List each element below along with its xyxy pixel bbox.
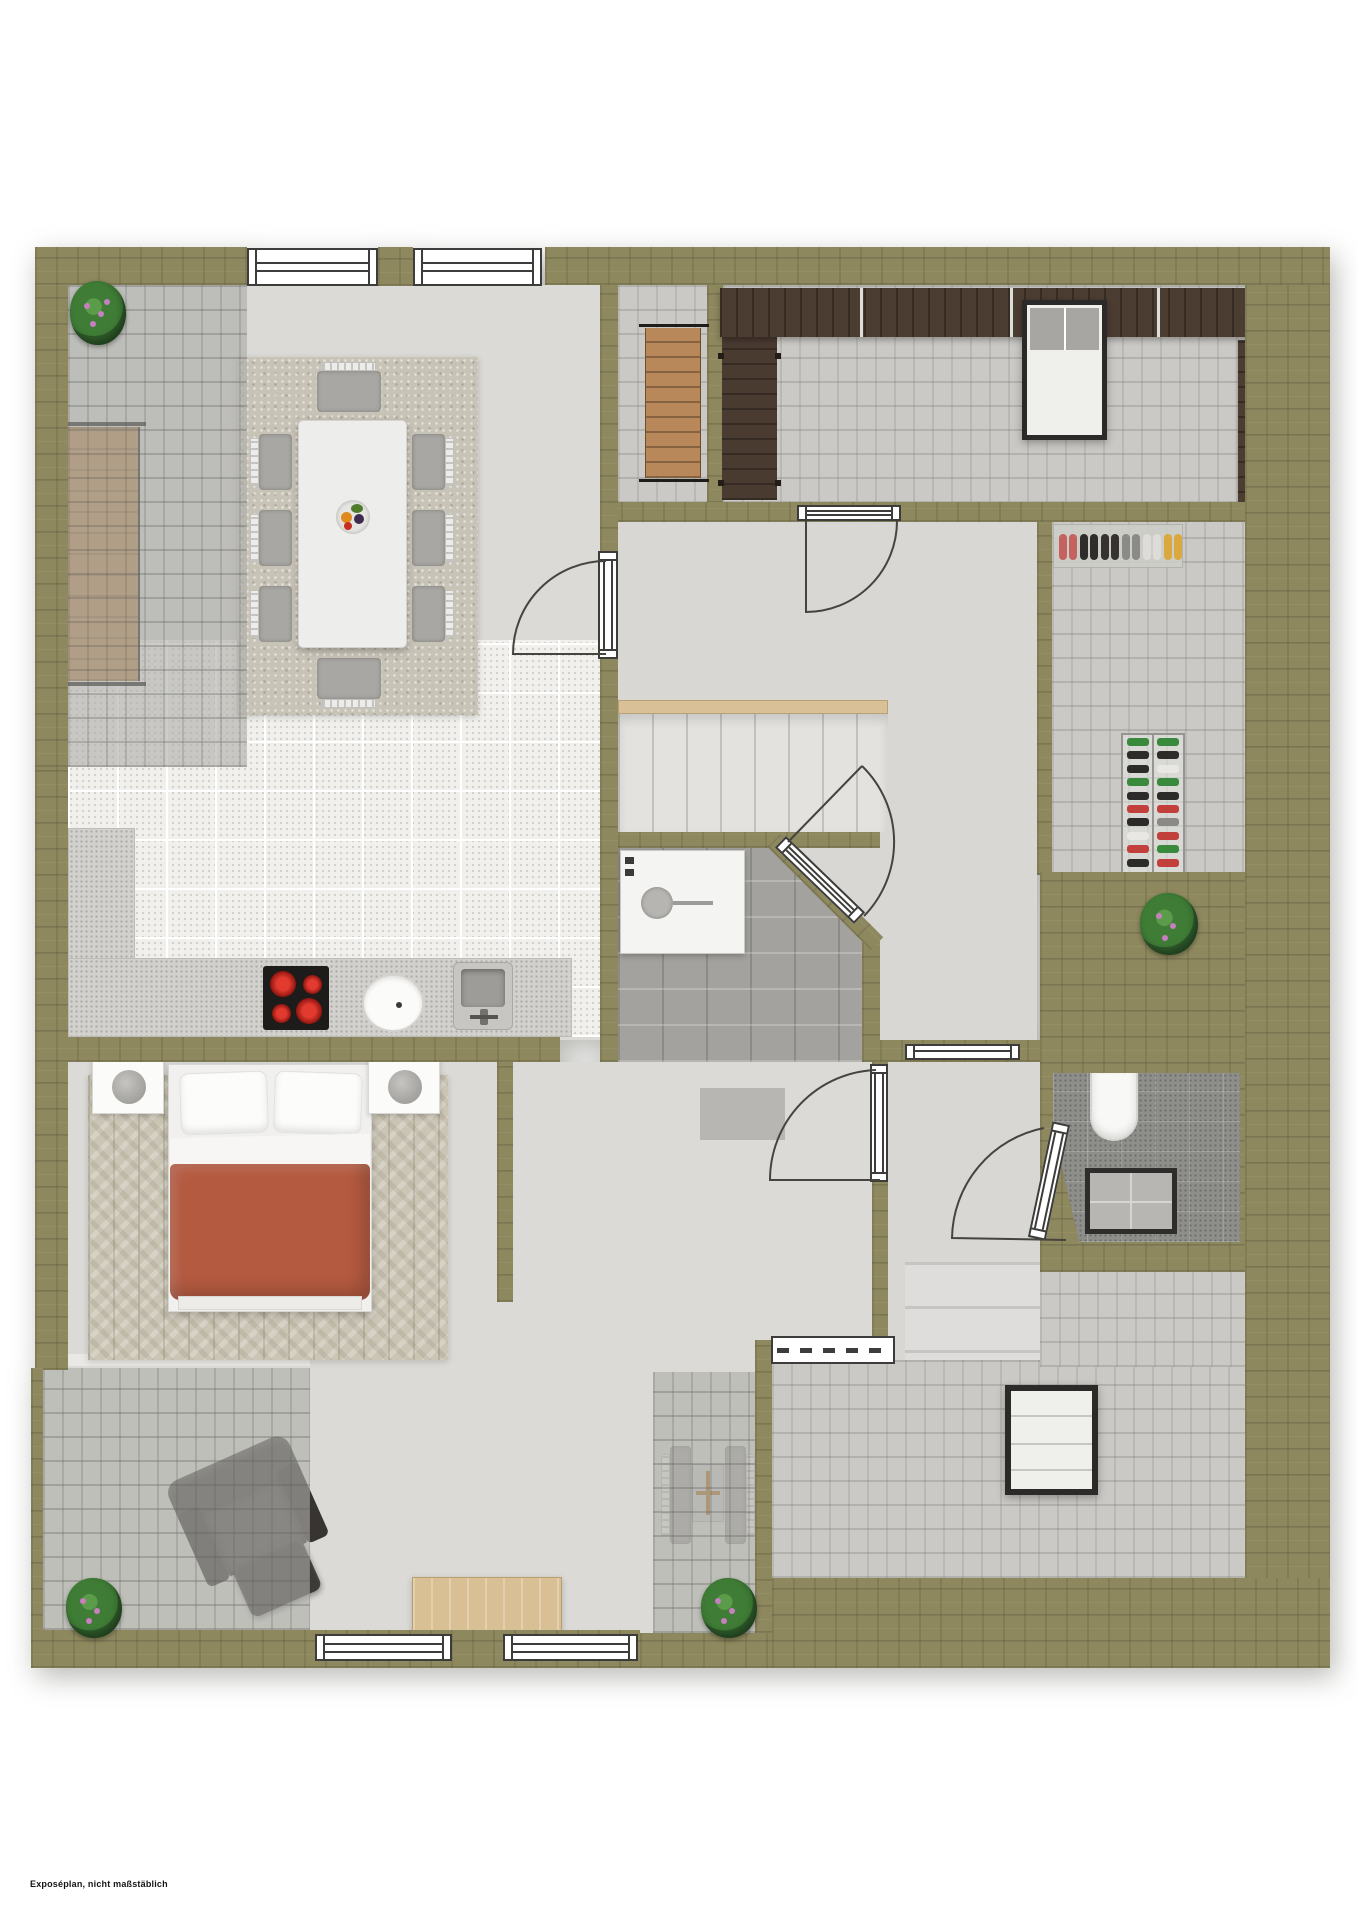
door-arc	[806, 521, 897, 612]
door-arc	[952, 1128, 1066, 1240]
door-swing-arcs	[0, 0, 1357, 1920]
floorplan-page: Exposéplan, nicht maßstäblich	[0, 0, 1357, 1920]
floorplan	[0, 0, 1357, 1920]
door-arc	[770, 1070, 880, 1180]
door-arc	[788, 766, 894, 916]
footer-note: Exposéplan, nicht maßstäblich	[30, 1879, 168, 1889]
door-arc	[513, 561, 606, 654]
